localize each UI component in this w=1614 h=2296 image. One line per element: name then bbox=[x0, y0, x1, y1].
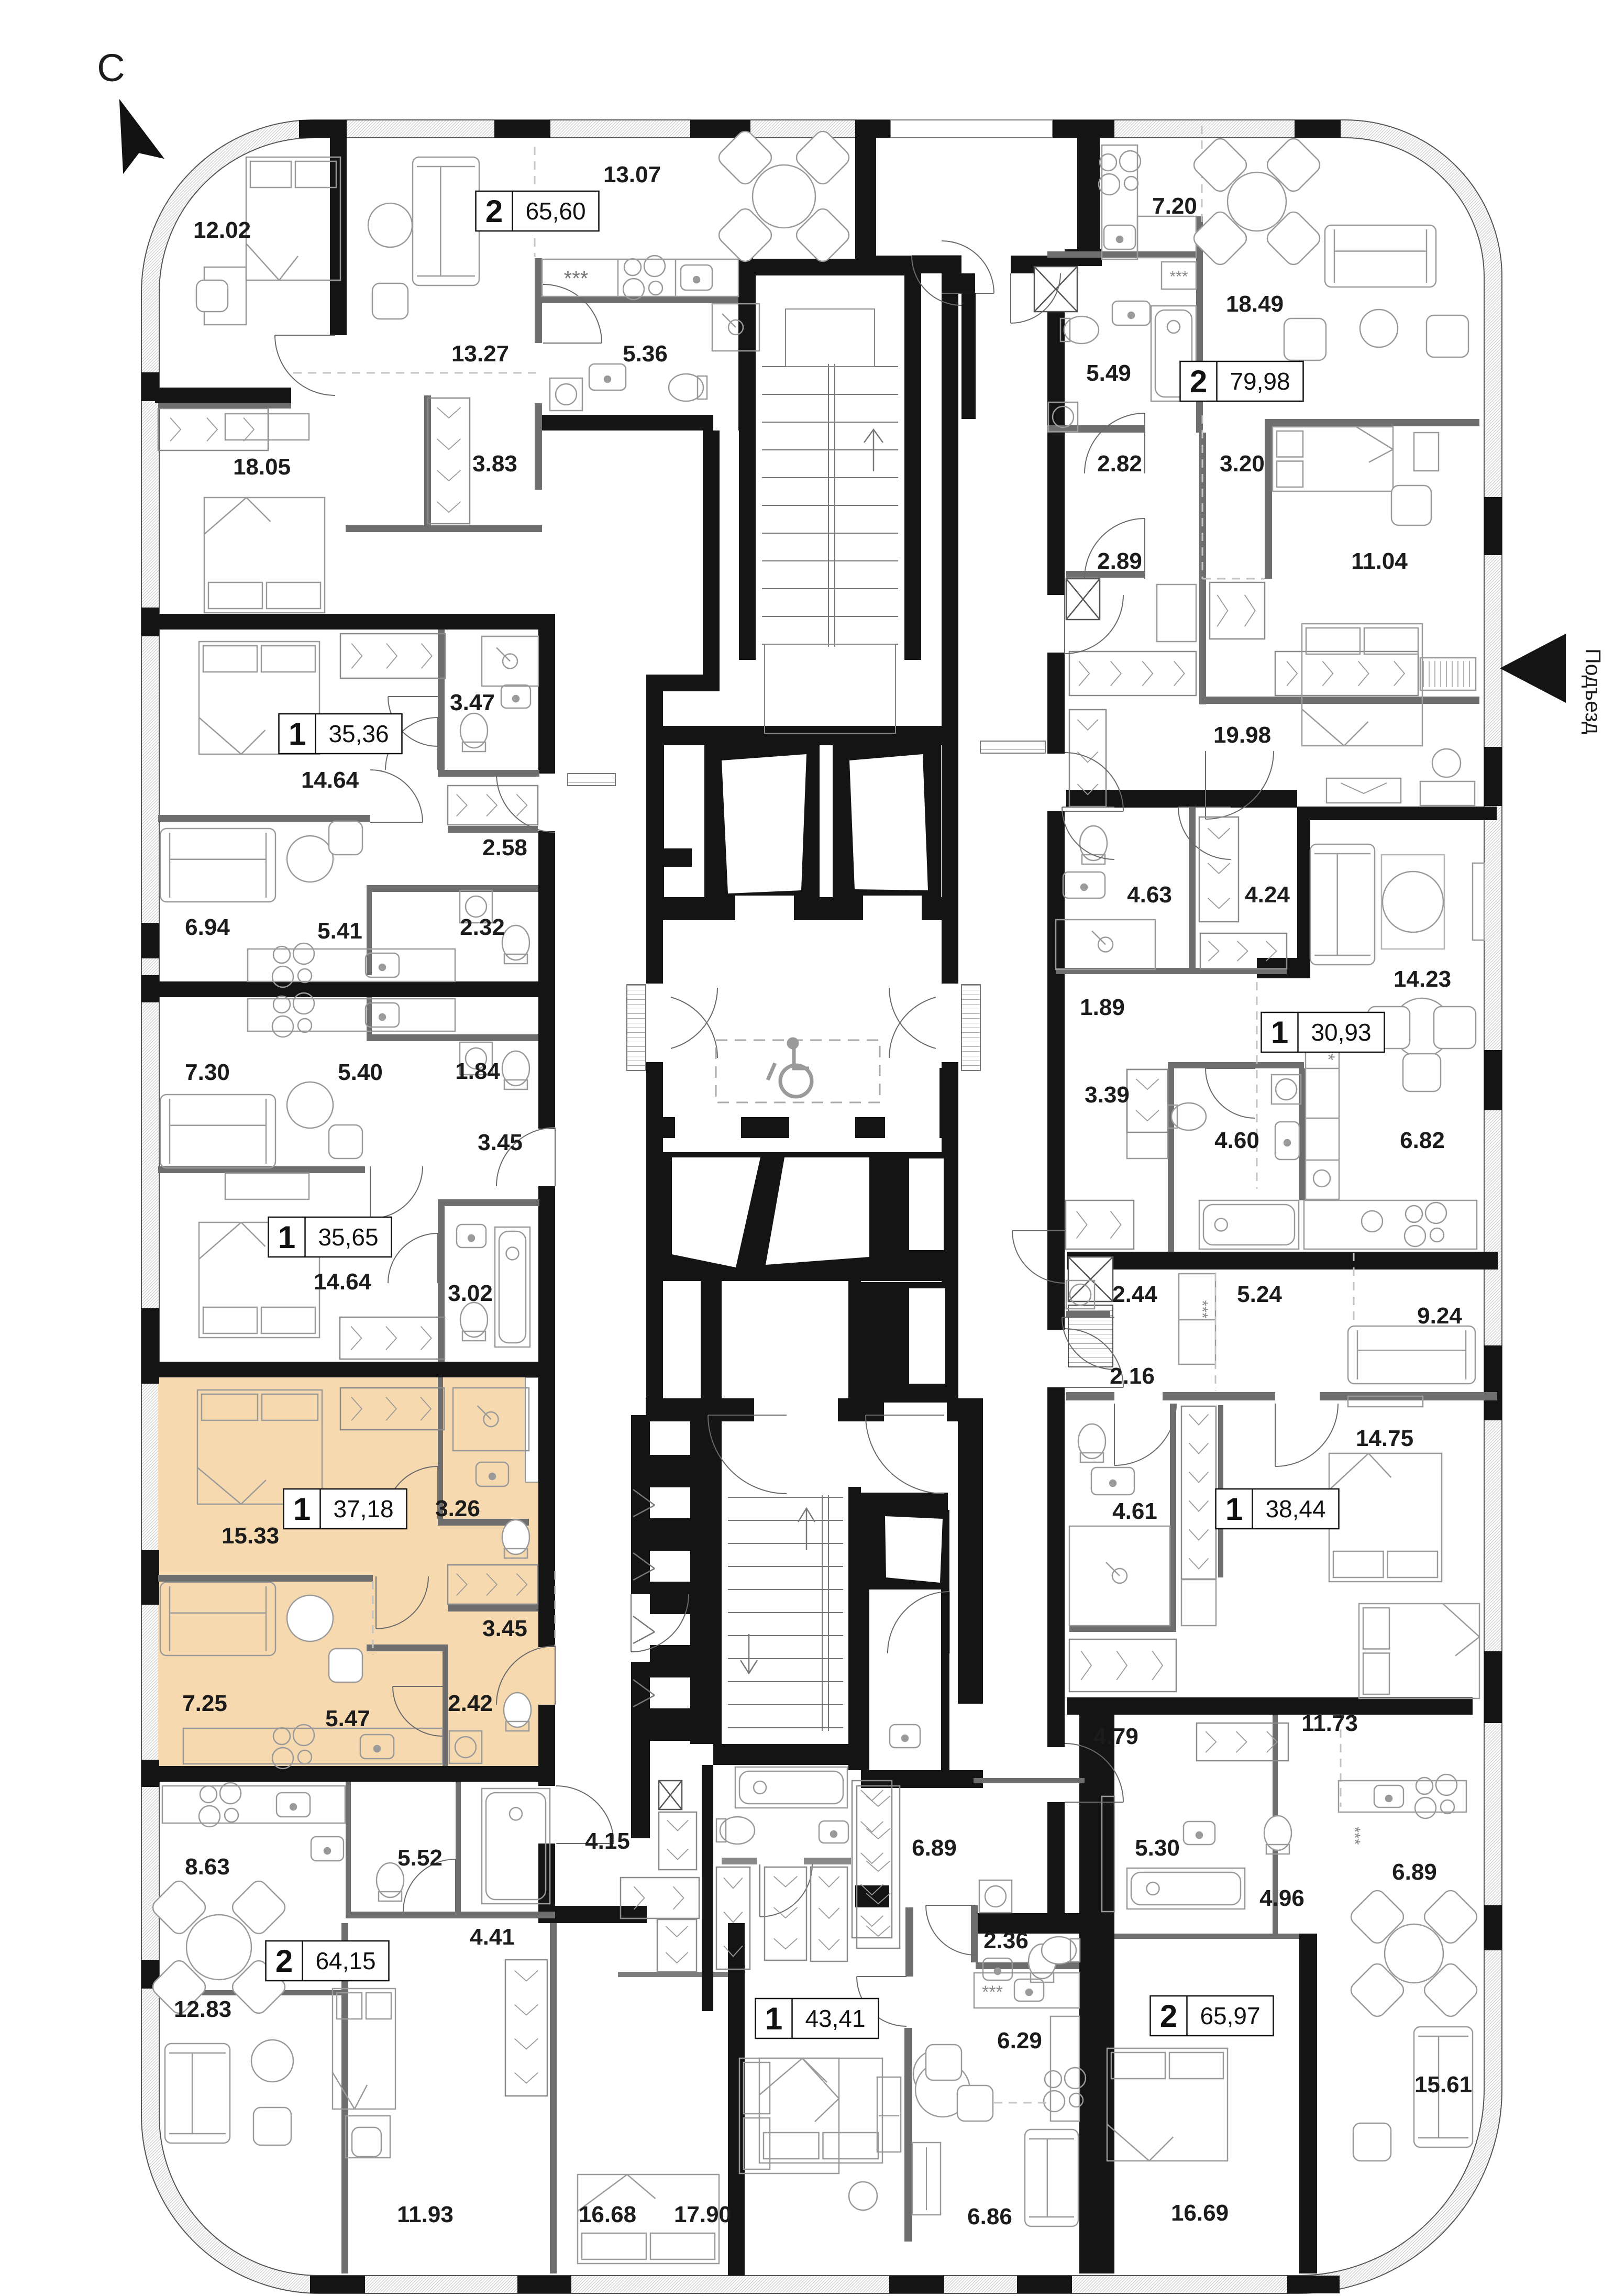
svg-text:4.61: 4.61 bbox=[1112, 1498, 1157, 1524]
svg-text:16.68: 16.68 bbox=[579, 2202, 636, 2227]
svg-text:1.84: 1.84 bbox=[455, 1058, 500, 1084]
svg-text:2.89: 2.89 bbox=[1097, 548, 1142, 574]
svg-text:16.69: 16.69 bbox=[1171, 2200, 1229, 2226]
svg-text:2: 2 bbox=[485, 194, 503, 229]
svg-text:14.23: 14.23 bbox=[1394, 966, 1451, 992]
svg-text:***: *** bbox=[1193, 1300, 1211, 1318]
svg-text:6.82: 6.82 bbox=[1400, 1128, 1445, 1153]
svg-text:18.05: 18.05 bbox=[233, 454, 291, 480]
svg-text:***: *** bbox=[564, 267, 589, 290]
svg-text:15.33: 15.33 bbox=[222, 1523, 279, 1549]
svg-text:5.52: 5.52 bbox=[397, 1845, 443, 1871]
svg-text:6.29: 6.29 bbox=[997, 2028, 1042, 2054]
svg-text:5.41: 5.41 bbox=[317, 918, 362, 944]
svg-text:35,65: 35,65 bbox=[318, 1223, 378, 1251]
svg-text:7.30: 7.30 bbox=[185, 1059, 230, 1085]
svg-text:***: *** bbox=[982, 1982, 1003, 2002]
svg-text:3.26: 3.26 bbox=[435, 1496, 480, 1521]
svg-text:1: 1 bbox=[765, 2001, 782, 2036]
svg-text:5.40: 5.40 bbox=[338, 1059, 383, 1085]
svg-text:37,18: 37,18 bbox=[333, 1495, 393, 1522]
svg-text:2: 2 bbox=[1190, 364, 1207, 399]
svg-text:3.47: 3.47 bbox=[450, 690, 495, 715]
svg-text:18.49: 18.49 bbox=[1226, 291, 1284, 317]
svg-text:14.64: 14.64 bbox=[301, 767, 359, 793]
svg-text:2.36: 2.36 bbox=[983, 1928, 1029, 1953]
svg-text:6.89: 6.89 bbox=[1392, 1859, 1437, 1885]
svg-text:2.44: 2.44 bbox=[1112, 1282, 1157, 1307]
svg-text:4.24: 4.24 bbox=[1245, 882, 1290, 908]
svg-text:5.49: 5.49 bbox=[1086, 360, 1131, 386]
svg-text:4.15: 4.15 bbox=[585, 1828, 630, 1854]
svg-text:35,36: 35,36 bbox=[328, 720, 389, 747]
svg-text:2.42: 2.42 bbox=[448, 1691, 493, 1716]
svg-text:6.86: 6.86 bbox=[967, 2204, 1012, 2229]
svg-text:14.64: 14.64 bbox=[314, 1269, 372, 1295]
svg-text:1: 1 bbox=[293, 1492, 311, 1527]
svg-text:8.63: 8.63 bbox=[185, 1854, 230, 1880]
svg-text:1: 1 bbox=[278, 1220, 295, 1255]
svg-text:15.61: 15.61 bbox=[1414, 2072, 1472, 2098]
svg-text:9.24: 9.24 bbox=[1417, 1303, 1462, 1329]
svg-text:5.24: 5.24 bbox=[1237, 1282, 1282, 1307]
svg-text:6.94: 6.94 bbox=[185, 914, 230, 940]
svg-text:2.82: 2.82 bbox=[1097, 451, 1142, 477]
svg-text:11.93: 11.93 bbox=[397, 2202, 454, 2227]
svg-text:2: 2 bbox=[275, 1944, 293, 1979]
svg-text:1: 1 bbox=[1225, 1492, 1243, 1527]
svg-text:2.58: 2.58 bbox=[482, 835, 527, 860]
svg-text:3.20: 3.20 bbox=[1220, 451, 1265, 477]
svg-text:4.60: 4.60 bbox=[1214, 1128, 1259, 1153]
svg-text:11.04: 11.04 bbox=[1351, 548, 1408, 574]
svg-text:11.73: 11.73 bbox=[1301, 1710, 1358, 1736]
svg-text:17.90: 17.90 bbox=[674, 2202, 732, 2227]
svg-text:65,60: 65,60 bbox=[525, 197, 585, 225]
svg-text:3.45: 3.45 bbox=[478, 1130, 523, 1155]
svg-text:4.96: 4.96 bbox=[1259, 1885, 1305, 1911]
svg-text:19.98: 19.98 bbox=[1213, 722, 1271, 748]
svg-text:5.36: 5.36 bbox=[623, 341, 668, 367]
svg-text:1.89: 1.89 bbox=[1080, 995, 1125, 1020]
svg-text:2.32: 2.32 bbox=[460, 914, 505, 940]
svg-text:3.02: 3.02 bbox=[448, 1281, 493, 1306]
svg-text:7.20: 7.20 bbox=[1152, 193, 1197, 219]
svg-text:Подъезд: Подъезд bbox=[1581, 648, 1605, 734]
svg-text:2: 2 bbox=[1160, 1999, 1177, 2034]
svg-text:3.45: 3.45 bbox=[482, 1616, 527, 1641]
svg-text:38,44: 38,44 bbox=[1265, 1495, 1325, 1522]
svg-text:4.79: 4.79 bbox=[1093, 1724, 1138, 1749]
svg-text:14.75: 14.75 bbox=[1356, 1426, 1413, 1451]
svg-text:64,15: 64,15 bbox=[315, 1947, 375, 1974]
svg-text:***: *** bbox=[1169, 268, 1188, 285]
svg-text:13.27: 13.27 bbox=[451, 341, 509, 367]
svg-text:5.30: 5.30 bbox=[1135, 1835, 1180, 1861]
svg-text:12.02: 12.02 bbox=[193, 217, 251, 243]
svg-text:5.47: 5.47 bbox=[325, 1706, 370, 1731]
svg-text:7.25: 7.25 bbox=[182, 1691, 227, 1716]
svg-text:1: 1 bbox=[1271, 1015, 1288, 1050]
svg-text:3.39: 3.39 bbox=[1085, 1082, 1130, 1108]
svg-text:30,93: 30,93 bbox=[1311, 1019, 1371, 1046]
svg-text:79,98: 79,98 bbox=[1230, 368, 1290, 395]
svg-text:12.83: 12.83 bbox=[174, 1996, 231, 2022]
svg-text:6.89: 6.89 bbox=[912, 1835, 957, 1861]
svg-text:13.07: 13.07 bbox=[603, 162, 661, 187]
svg-text:1: 1 bbox=[289, 716, 306, 752]
svg-text:***: *** bbox=[1346, 1826, 1363, 1845]
svg-text:4.41: 4.41 bbox=[470, 1924, 515, 1950]
svg-text:65,97: 65,97 bbox=[1200, 2002, 1260, 2029]
svg-text:2.16: 2.16 bbox=[1110, 1363, 1155, 1389]
svg-text:3.83: 3.83 bbox=[472, 451, 517, 477]
svg-text:4.63: 4.63 bbox=[1127, 882, 1172, 908]
svg-text:43,41: 43,41 bbox=[805, 2005, 865, 2032]
svg-text:С: С bbox=[97, 46, 125, 90]
